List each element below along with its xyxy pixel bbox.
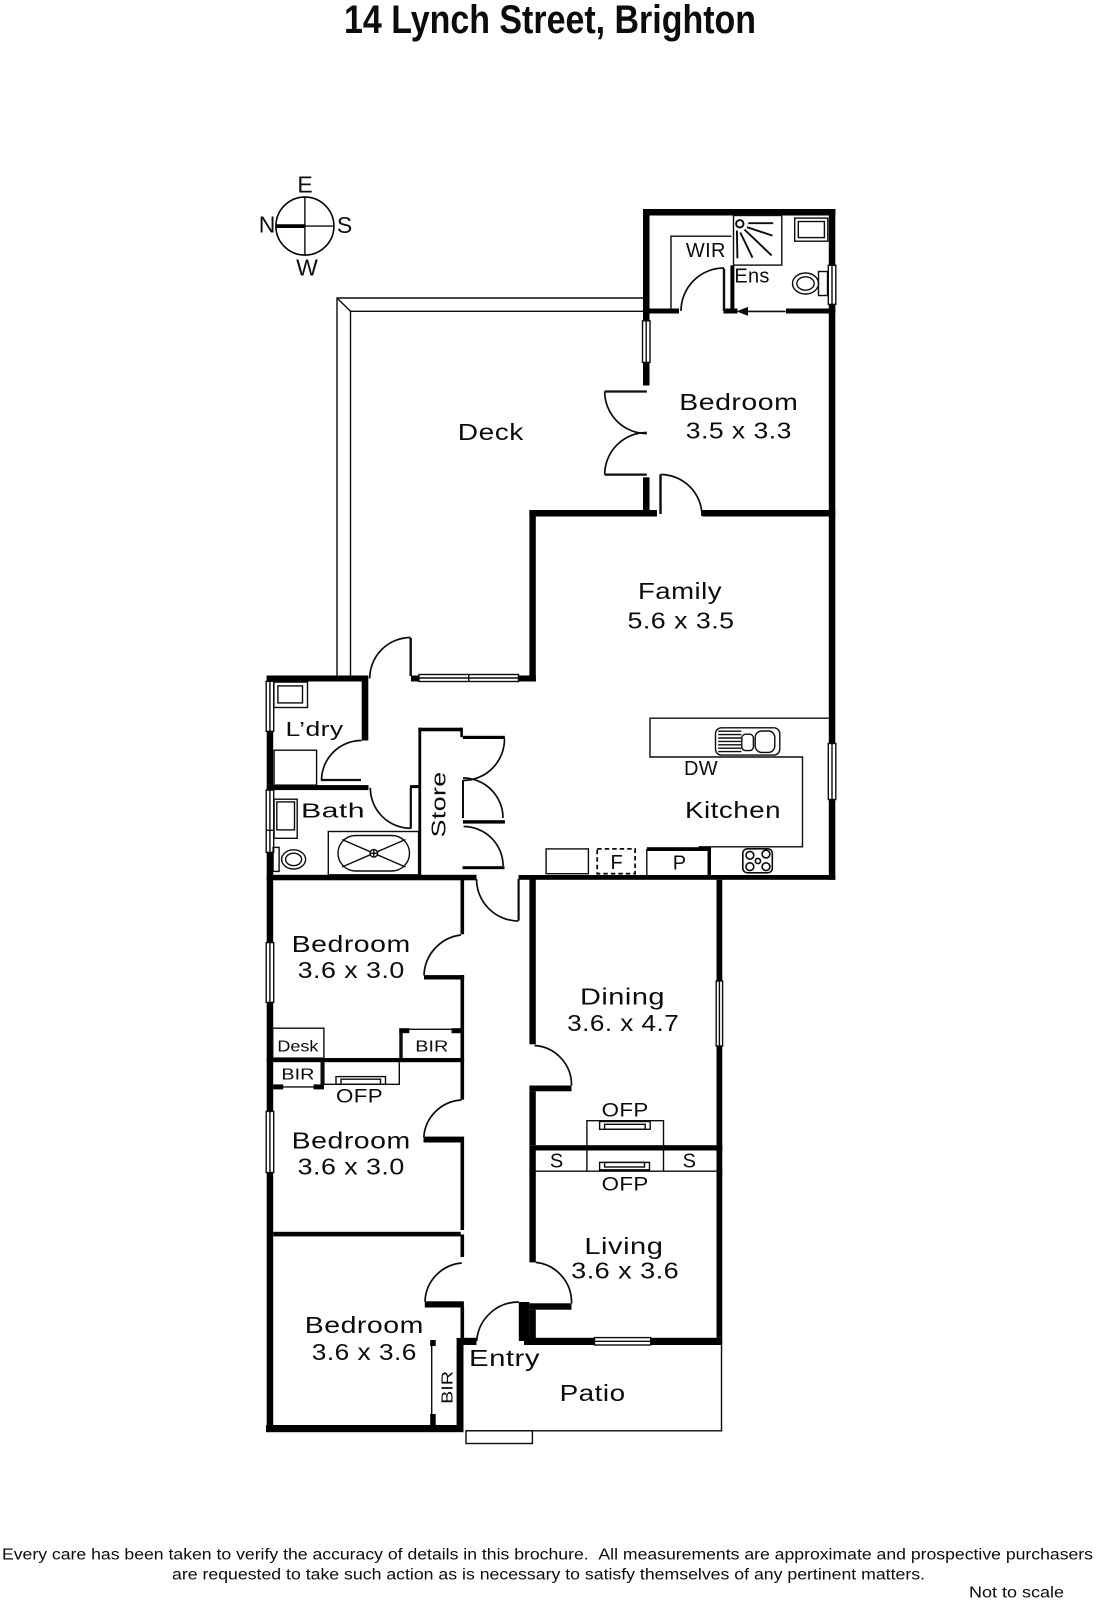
svg-text:DW: DW: [684, 758, 718, 780]
svg-text:BIR: BIR: [281, 1066, 314, 1083]
svg-text:P: P: [673, 853, 687, 875]
svg-text:Kitchen: Kitchen: [685, 797, 781, 823]
svg-text:N: N: [259, 211, 276, 237]
svg-text:L’dry: L’dry: [286, 719, 344, 741]
svg-text:Desk: Desk: [277, 1038, 319, 1055]
svg-text:14 Lynch Street, Brighton: 14 Lynch Street, Brighton: [344, 0, 756, 42]
svg-text:3.6. x 4.7: 3.6. x 4.7: [567, 1010, 679, 1036]
svg-text:Bedroom: Bedroom: [292, 1127, 411, 1153]
svg-text:Bedroom: Bedroom: [305, 1312, 424, 1338]
svg-text:OFP: OFP: [602, 1174, 649, 1195]
svg-text:Ens: Ens: [734, 266, 769, 288]
svg-text:3.6 x 3.6: 3.6 x 3.6: [571, 1257, 679, 1283]
svg-text:WIR: WIR: [686, 240, 726, 262]
svg-text:Deck: Deck: [458, 419, 524, 445]
svg-text:Entry: Entry: [469, 1345, 540, 1371]
svg-text:Family: Family: [638, 578, 722, 604]
svg-text:Living: Living: [584, 1233, 663, 1259]
svg-text:S: S: [337, 212, 352, 238]
svg-text:3.6 x 3.0: 3.6 x 3.0: [298, 1154, 405, 1180]
svg-text:Bedroom: Bedroom: [679, 389, 798, 415]
svg-text:Every care has been taken to v: Every care has been taken to verify the …: [2, 1547, 1093, 1564]
svg-text:S: S: [550, 1151, 564, 1173]
svg-text:Bedroom: Bedroom: [292, 931, 411, 957]
svg-text:Bath: Bath: [301, 801, 365, 823]
svg-text:Dining: Dining: [580, 983, 665, 1009]
svg-text:Patio: Patio: [560, 1380, 626, 1406]
svg-text:are requested to take such act: are requested to take such action as is …: [172, 1567, 925, 1584]
svg-text:F: F: [611, 852, 624, 874]
svg-text:OFP: OFP: [336, 1086, 383, 1107]
svg-text:3.6 x 3.0: 3.6 x 3.0: [298, 957, 405, 983]
svg-text:5.6 x 3.5: 5.6 x 3.5: [628, 607, 735, 633]
svg-text:3.6 x 3.6: 3.6 x 3.6: [312, 1339, 417, 1365]
svg-text:S: S: [683, 1151, 697, 1173]
svg-text:BIR: BIR: [415, 1038, 448, 1055]
svg-text:W: W: [296, 254, 318, 280]
svg-text:Store: Store: [429, 771, 451, 837]
svg-text:OFP: OFP: [602, 1100, 649, 1121]
svg-text:3.5 x 3.3: 3.5 x 3.3: [686, 417, 792, 443]
svg-text:E: E: [297, 171, 312, 197]
svg-text:BIR: BIR: [439, 1371, 456, 1404]
svg-text:Not to scale: Not to scale: [969, 1585, 1064, 1600]
